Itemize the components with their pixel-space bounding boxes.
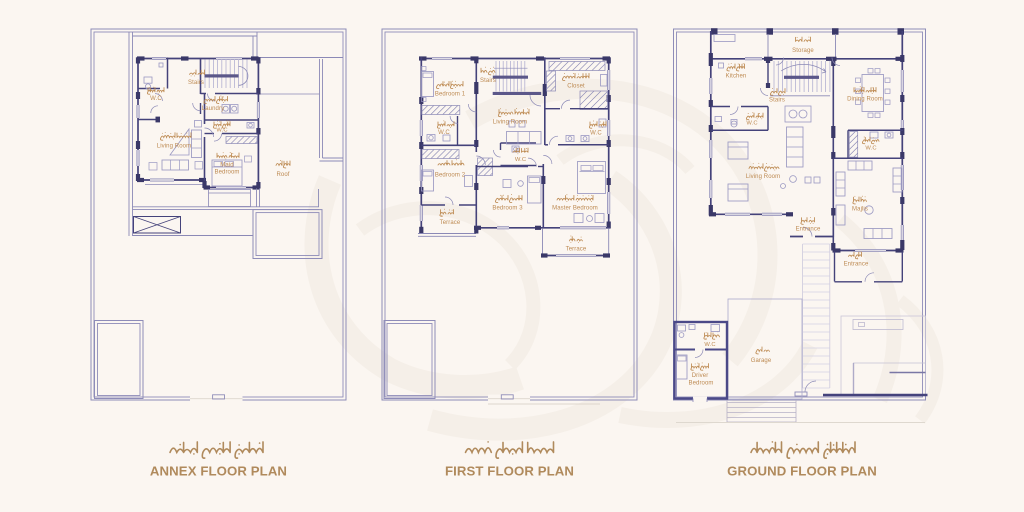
svg-text:Maid: Maid: [220, 163, 233, 169]
svg-text:Bedroom: Bedroom: [688, 381, 713, 387]
svg-text:Majlis: Majlis: [852, 207, 868, 213]
svg-text:Roof: Roof: [276, 172, 289, 178]
svg-text:ANNEX FLOOR PLAN: ANNEX FLOOR PLAN: [150, 463, 287, 478]
svg-text:Stairs: Stairs: [480, 78, 496, 84]
svg-text:W.C: W.C: [216, 128, 227, 134]
svg-text:W.C: W.C: [150, 96, 162, 102]
svg-text:GROUND FLOOR PLAN: GROUND FLOOR PLAN: [727, 463, 877, 478]
svg-text:W.C: W.C: [865, 146, 876, 152]
svg-text:Kitchen: Kitchen: [726, 74, 747, 80]
svg-text:Bedroom 2: Bedroom 2: [435, 173, 466, 179]
svg-text:Terrace: Terrace: [566, 247, 587, 253]
svg-text:Bedroom 3: Bedroom 3: [492, 206, 523, 212]
svg-text:Laundry: Laundry: [202, 106, 224, 112]
svg-text:W.C: W.C: [515, 157, 526, 163]
svg-text:Storage: Storage: [792, 48, 814, 54]
svg-text:Stairs: Stairs: [769, 98, 785, 104]
svg-text:W.C: W.C: [746, 121, 757, 127]
svg-text:Terrace: Terrace: [440, 220, 461, 226]
svg-text:Dining Room: Dining Room: [847, 97, 883, 103]
svg-text:Bedroom: Bedroom: [214, 170, 239, 176]
svg-text:W.C: W.C: [704, 342, 715, 348]
svg-text:FIRST FLOOR PLAN: FIRST FLOOR PLAN: [445, 463, 574, 478]
svg-text:Living Room: Living Room: [493, 120, 527, 126]
svg-text:W.C: W.C: [438, 130, 450, 136]
svg-text:Closet: Closet: [567, 84, 585, 90]
svg-text:Entrance: Entrance: [844, 262, 869, 268]
svg-text:Bedroom 1: Bedroom 1: [435, 92, 466, 98]
svg-text:Driver: Driver: [692, 373, 709, 379]
svg-text:Entrance: Entrance: [796, 227, 821, 233]
svg-text:Living Room: Living Room: [746, 174, 780, 180]
svg-text:Garage: Garage: [751, 358, 772, 364]
svg-text:Living Room: Living Room: [157, 144, 191, 150]
svg-text:W.C: W.C: [590, 131, 602, 137]
svg-text:Stairs: Stairs: [188, 80, 204, 86]
svg-text:Master Bedroom: Master Bedroom: [552, 206, 598, 212]
